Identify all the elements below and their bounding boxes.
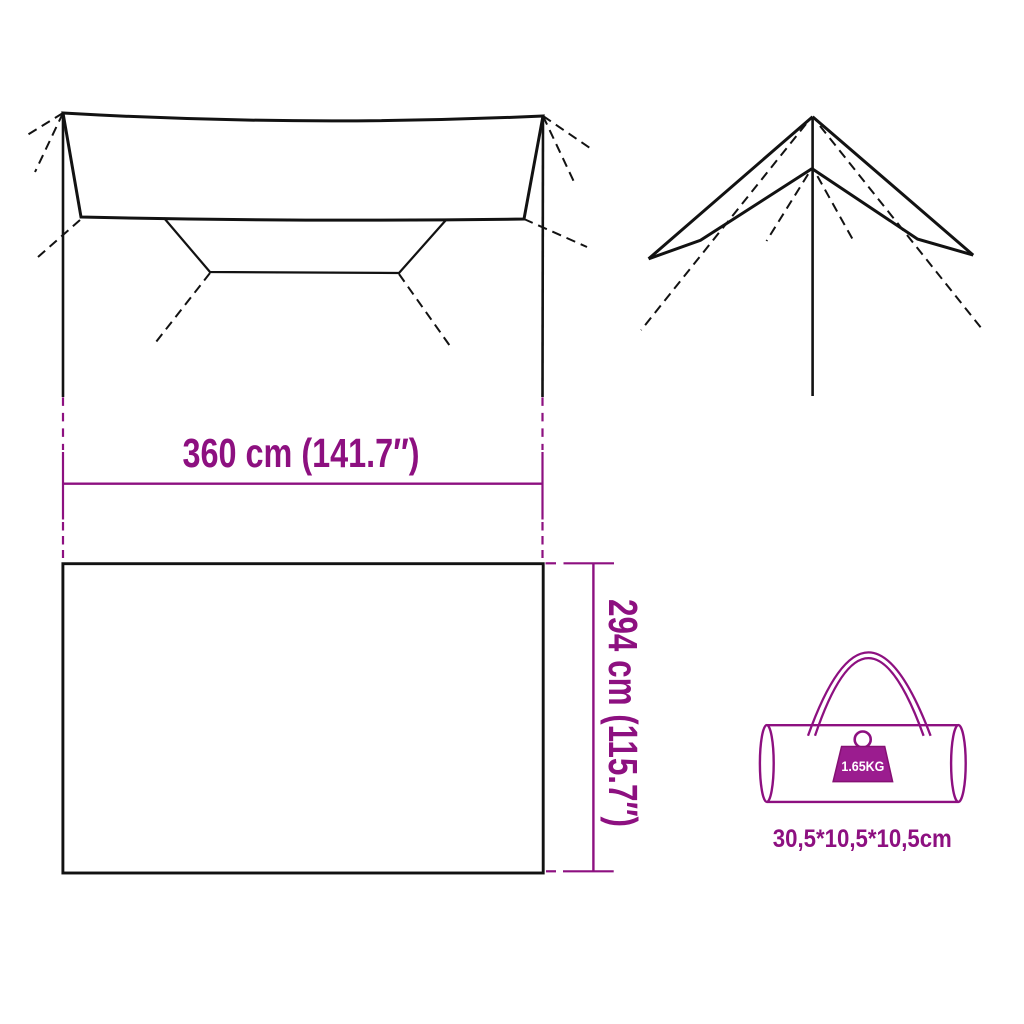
svg-text:30,5*10,5*10,5cm: 30,5*10,5*10,5cm [773, 825, 952, 853]
svg-text:294 cm (115.7″): 294 cm (115.7″) [600, 599, 646, 827]
svg-text:1.65KG: 1.65KG [841, 758, 884, 774]
svg-text:360 cm (141.7″): 360 cm (141.7″) [183, 430, 420, 476]
